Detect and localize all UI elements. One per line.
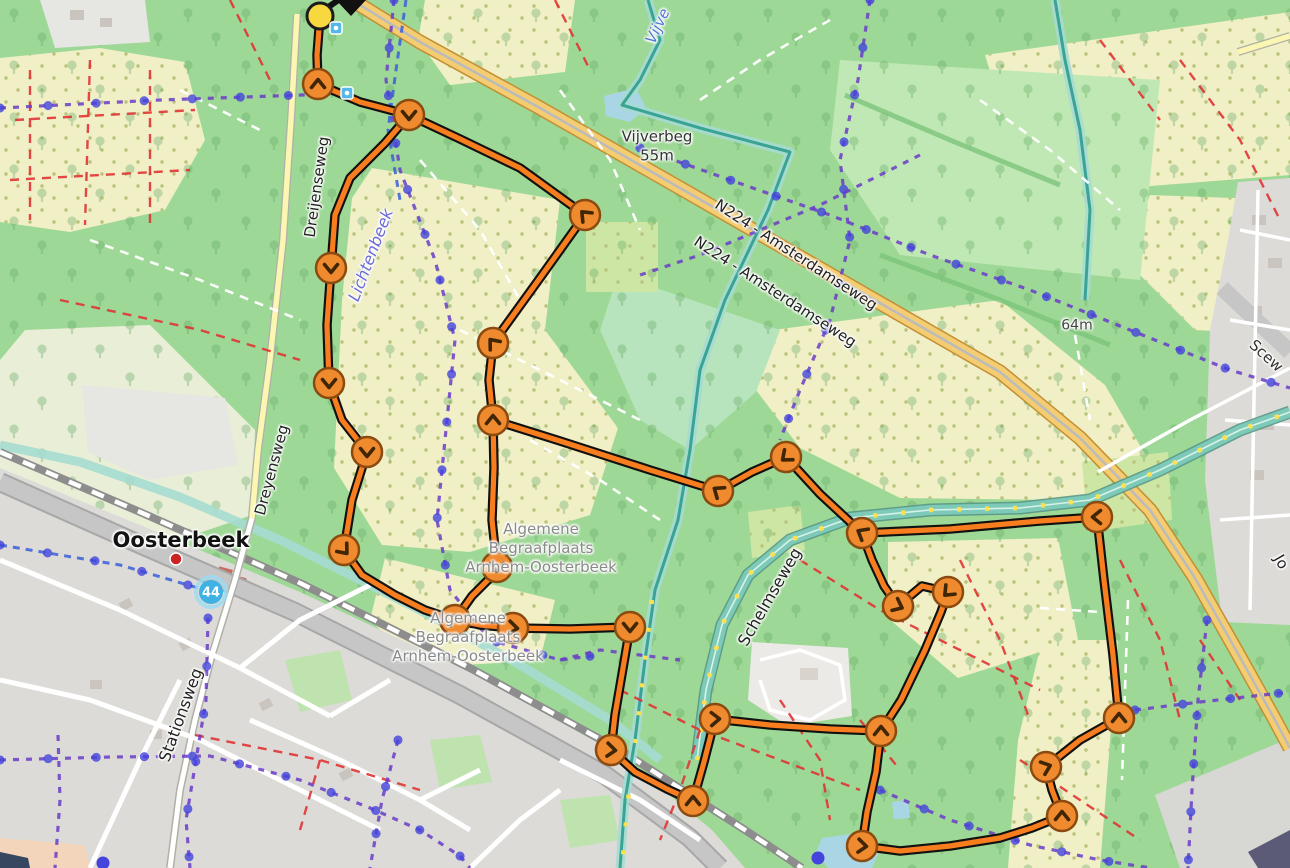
map-render-layer: 44 [0, 0, 1290, 868]
route-direction-marker[interactable] [482, 552, 512, 582]
building [90, 680, 102, 689]
route-direction-marker[interactable] [595, 734, 628, 767]
route-direction-marker[interactable] [678, 786, 708, 816]
map-canvas[interactable]: 44 Dreijenseweg Lichtenbeek Dreyensweg S… [0, 0, 1290, 868]
route-direction-marker[interactable] [846, 830, 879, 863]
route-direction-marker[interactable] [352, 437, 382, 467]
route-direction-marker[interactable] [615, 612, 645, 642]
route-direction-marker[interactable] [1082, 502, 1112, 532]
terrain-patch [560, 795, 620, 848]
route-direction-marker[interactable] [314, 368, 344, 398]
network-node-dot [812, 852, 825, 865]
svg-text:44: 44 [202, 586, 220, 601]
station-marker [170, 553, 182, 565]
route-direction-marker[interactable] [316, 253, 346, 283]
building [100, 18, 112, 27]
route-direction-marker[interactable] [1104, 703, 1134, 733]
route-direction-marker[interactable] [478, 405, 508, 435]
route-direction-marker[interactable] [866, 716, 896, 746]
building [800, 668, 818, 680]
terrain-patch [40, 0, 150, 48]
route-direction-marker[interactable] [394, 100, 424, 130]
route-direction-marker[interactable] [303, 69, 333, 99]
building [70, 10, 84, 20]
route-direction-marker[interactable] [699, 703, 730, 734]
route-direction-marker[interactable] [1047, 801, 1077, 831]
route-direction-marker[interactable] [497, 612, 530, 645]
cycle-node-badge: 44 [196, 577, 226, 607]
building [1268, 258, 1282, 268]
